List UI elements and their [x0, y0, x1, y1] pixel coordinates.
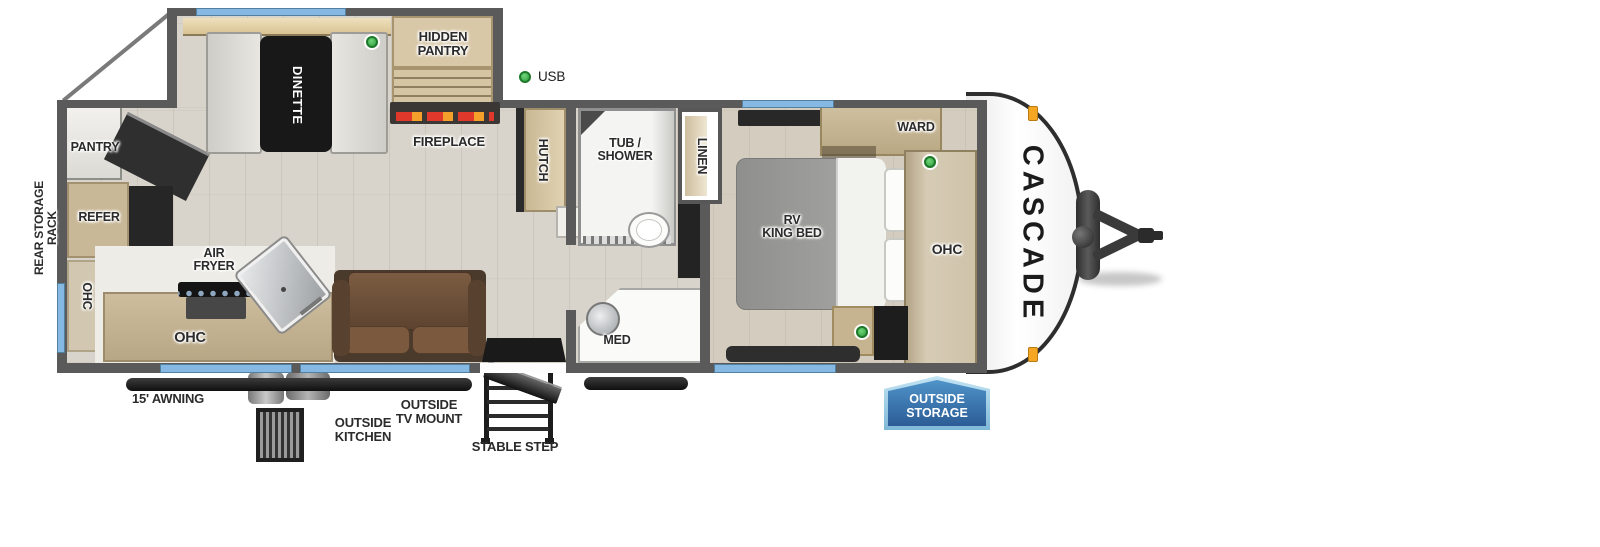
- sink-drain: [281, 287, 286, 292]
- bedroom-ohc-cabinet: [904, 150, 977, 365]
- window-bottom-bedroom: [714, 364, 836, 373]
- window-bedroom-top: [742, 100, 834, 108]
- hidden-pantry-label: HIDDEN PANTRY: [398, 30, 488, 58]
- window-rear-left: [57, 283, 65, 353]
- slideout-diagonal-edge: [62, 9, 174, 102]
- marker-light-top: [1028, 106, 1038, 121]
- cooktop: [178, 282, 252, 297]
- awning-rail-front: [584, 377, 688, 390]
- slideout-wall-left: [167, 8, 177, 108]
- rv-king-bed-label: RV KING BED: [747, 214, 837, 241]
- range-body: [186, 297, 246, 319]
- step-rung-2: [487, 400, 549, 404]
- med-label: MED: [592, 334, 642, 347]
- bath-wall-left-upper: [566, 108, 576, 245]
- marker-light-bottom: [1028, 347, 1038, 362]
- usb-dot-legend: [519, 71, 531, 83]
- bath-wall-left-lower: [566, 310, 576, 363]
- sofa-seat-left: [344, 326, 410, 354]
- sofa-arm-right: [468, 280, 486, 356]
- bath-sink: [586, 302, 620, 336]
- entry-mat: [482, 338, 566, 362]
- sofa-arm-left: [332, 280, 350, 356]
- window-bottom-sofa: [300, 364, 470, 373]
- awning-label: 15' AWNING: [108, 392, 228, 406]
- refer-label: REFER: [64, 211, 134, 224]
- step-rung-3: [487, 414, 549, 418]
- linen-label: LINEN: [692, 137, 708, 175]
- hitch-hub: [1072, 226, 1094, 248]
- outside-tv-mount-label: OUTSIDE TV MOUNT: [374, 398, 484, 426]
- ohc-rear-label: OHC: [77, 281, 93, 311]
- hidden-pantry-steps: [392, 68, 493, 106]
- bed-bench: [726, 346, 860, 362]
- fireplace-label: FIREPLACE: [404, 135, 494, 149]
- awning-rail-rear: [126, 378, 472, 391]
- hitch-coupler-tip: [1152, 231, 1163, 240]
- usb-dot-dinette: [366, 36, 378, 48]
- ohc-kitchen-label: OHC: [155, 331, 225, 346]
- hutch-label: HUTCH: [533, 138, 549, 182]
- rear-storage-rack-label: REAR STORAGE RACK: [33, 165, 49, 291]
- step-rung-4: [487, 427, 549, 431]
- wardrobe-shadow: [822, 146, 876, 158]
- dinette-bench-right: [330, 32, 388, 154]
- outside-storage-label: OUTSIDE STORAGE: [906, 385, 968, 421]
- floorplan-canvas: CASCADE: [0, 0, 1600, 547]
- entry-threshold: [480, 363, 566, 373]
- pantry-label: PANTRY: [60, 141, 130, 154]
- tub-shower-label: TUB / SHOWER: [585, 137, 665, 164]
- slideout-wall-right: [493, 8, 503, 108]
- cascade-logo: CASCADE: [1017, 142, 1049, 327]
- wall-top-rear: [57, 100, 177, 108]
- sofa-back: [348, 272, 472, 330]
- nightstand-dark-item: [874, 306, 908, 360]
- usb-dot-ward: [924, 156, 936, 168]
- outside-kitchen-griddle: [256, 408, 304, 462]
- wall-top-front: [493, 100, 987, 108]
- wall-right: [977, 100, 987, 373]
- air-fryer-label: AIR FRYER: [179, 247, 249, 274]
- ward-label: WARD: [881, 121, 951, 134]
- stable-step-label: STABLE STEP: [455, 440, 575, 454]
- usb-dot-nightstand: [856, 326, 868, 338]
- toilet-seat: [636, 219, 662, 241]
- window-slideout: [196, 8, 346, 16]
- window-bottom-kitchen: [160, 364, 292, 373]
- usb-legend-label: USB: [538, 70, 578, 84]
- ohc-bedroom-label: OHC: [912, 242, 982, 257]
- dinette-label: DINETTE: [288, 66, 304, 122]
- dinette-bench-left: [206, 32, 262, 154]
- bed-blanket-fold: [836, 158, 886, 310]
- fireplace-flames: [396, 112, 494, 121]
- hutch-dark-edge: [516, 108, 524, 212]
